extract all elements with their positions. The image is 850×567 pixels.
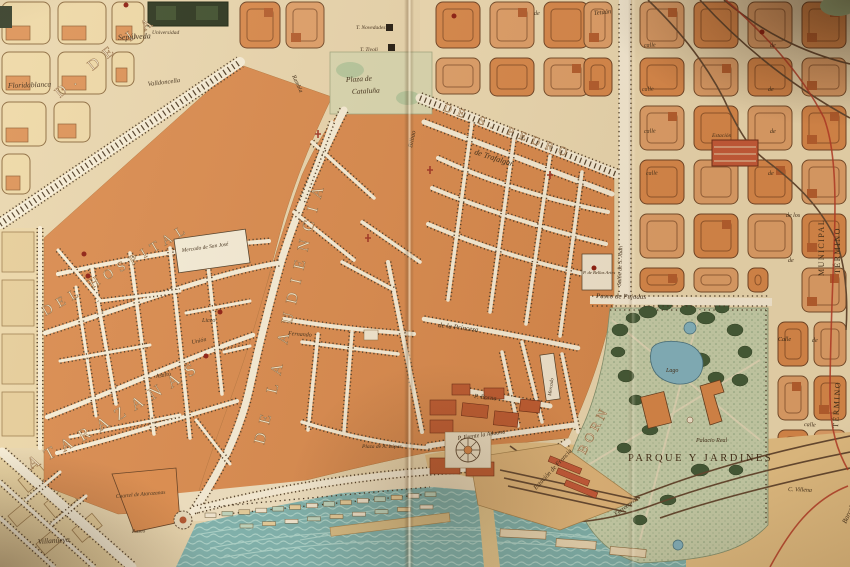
street-de: de — [768, 171, 774, 177]
plaza-san-jaime — [364, 330, 378, 340]
universidad-label: Universidad — [152, 30, 179, 36]
teatro-tivoli-building — [388, 44, 395, 51]
plaza-cataluna-label-1: Plaza de — [345, 74, 373, 84]
street-calle: calle — [646, 171, 658, 177]
municipal-label: MUNICIPAL — [817, 219, 826, 276]
plaza-cataluna-label-2: Cataluña — [352, 86, 381, 96]
street-sepulveda: Sepúlveda — [118, 31, 151, 42]
street-de: de — [788, 258, 794, 264]
city-map-svg: DE LA AUDIENCIA DEL HOSPITAL ATARAZANAS … — [0, 0, 850, 567]
street-calle-cap: Calle — [778, 337, 791, 343]
estacion-norte-label: Estación — [711, 133, 731, 139]
teatro-novedades-building — [386, 24, 393, 31]
parque-label: PARQUE Y JARDINES — [628, 453, 773, 464]
street-de: de — [534, 11, 540, 17]
map-photo: DE LA AUDIENCIA DEL HOSPITAL ATARAZANAS … — [0, 0, 850, 567]
tivoli-label: T. Tivoli — [360, 47, 378, 53]
lago-label: Lago — [665, 368, 678, 374]
estacion-norte-building — [712, 140, 758, 166]
street-de-los: de los — [786, 213, 801, 219]
palacio-real-label: Palacio Real — [695, 438, 727, 444]
street-de: de — [770, 43, 776, 49]
plaza-lopez-label: Plaza de A. López — [361, 444, 402, 450]
street-calle: calle — [804, 422, 816, 429]
street-villena: C. Villena — [788, 487, 812, 494]
street-de: de — [770, 129, 776, 135]
street-paseo: Paseo — [131, 528, 146, 535]
street-de: de — [768, 87, 774, 93]
street-pujadas: Paseo de Pujadas — [595, 292, 647, 301]
street-de: de — [812, 338, 818, 344]
street-calle: calle — [644, 129, 656, 135]
termino-label: TÉRMINO — [832, 227, 842, 274]
novedades-label: T. Novedades — [356, 25, 386, 31]
bellas-artes-label: P. de Bellas Artes — [582, 270, 615, 275]
street-calle: calle — [642, 87, 654, 93]
street-calle: calle — [644, 43, 656, 49]
liceo-label: Liceo — [201, 318, 215, 324]
street-floridablanca: Floridablanca — [7, 79, 52, 90]
